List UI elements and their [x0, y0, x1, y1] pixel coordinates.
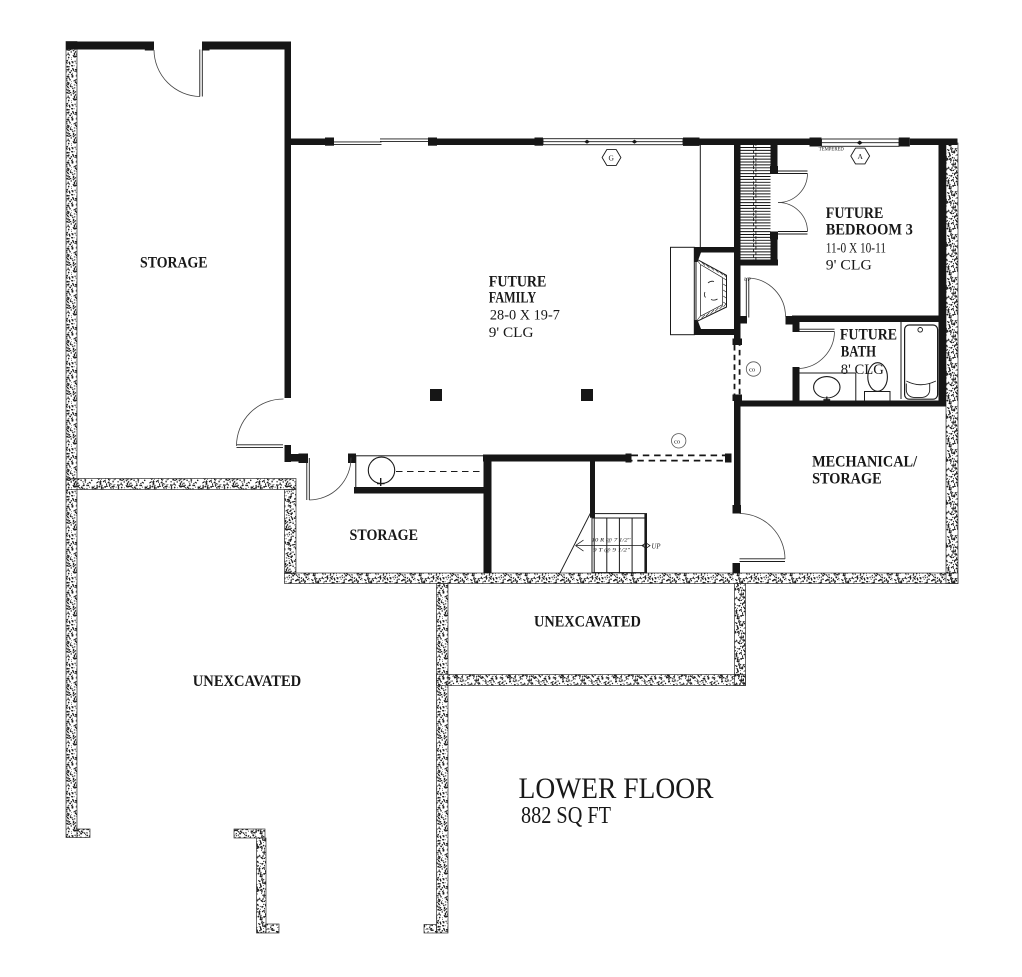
svg-text:UP: UP	[652, 542, 662, 550]
svg-text:G: G	[609, 153, 615, 162]
svg-text:9' CLG: 9' CLG	[489, 325, 534, 341]
svg-text:FUTURE: FUTURE	[826, 205, 884, 222]
svg-text:10 R @ 7 1/2": 10 R @ 7 1/2"	[592, 538, 632, 544]
svg-text:co: co	[749, 367, 755, 374]
svg-text:FUTURE: FUTURE	[489, 273, 547, 290]
svg-text:FAMILY: FAMILY	[489, 290, 537, 307]
svg-text:28-0 X 19-7: 28-0 X 19-7	[490, 308, 560, 324]
svg-text:UNEXCAVATED: UNEXCAVATED	[193, 673, 301, 690]
svg-text:UNEXCAVATED: UNEXCAVATED	[534, 614, 641, 631]
svg-text:STORAGE: STORAGE	[812, 470, 882, 487]
svg-text:UP: UP	[744, 278, 751, 283]
svg-text:9 T @ 9 1/2": 9 T @ 9 1/2"	[593, 548, 631, 554]
svg-text:9' CLG: 9' CLG	[826, 257, 872, 273]
svg-text:co: co	[674, 439, 680, 446]
svg-text:BATH: BATH	[841, 343, 877, 360]
svg-text:STORAGE: STORAGE	[350, 527, 419, 544]
svg-text:BEDROOM 3: BEDROOM 3	[826, 221, 913, 238]
svg-text:MECHANICAL/: MECHANICAL/	[812, 453, 917, 470]
svg-text:STORAGE: STORAGE	[140, 255, 208, 272]
svg-text:LOWER FLOOR: LOWER FLOOR	[519, 772, 714, 805]
svg-text:882 SQ FT: 882 SQ FT	[521, 803, 611, 829]
svg-text:FUTURE: FUTURE	[840, 327, 897, 344]
svg-text:11-0 X 10-11: 11-0 X 10-11	[826, 241, 886, 257]
svg-text:TEMPERED: TEMPERED	[819, 147, 844, 152]
svg-text:8' CLG: 8' CLG	[841, 362, 884, 378]
svg-text:A: A	[858, 152, 864, 161]
